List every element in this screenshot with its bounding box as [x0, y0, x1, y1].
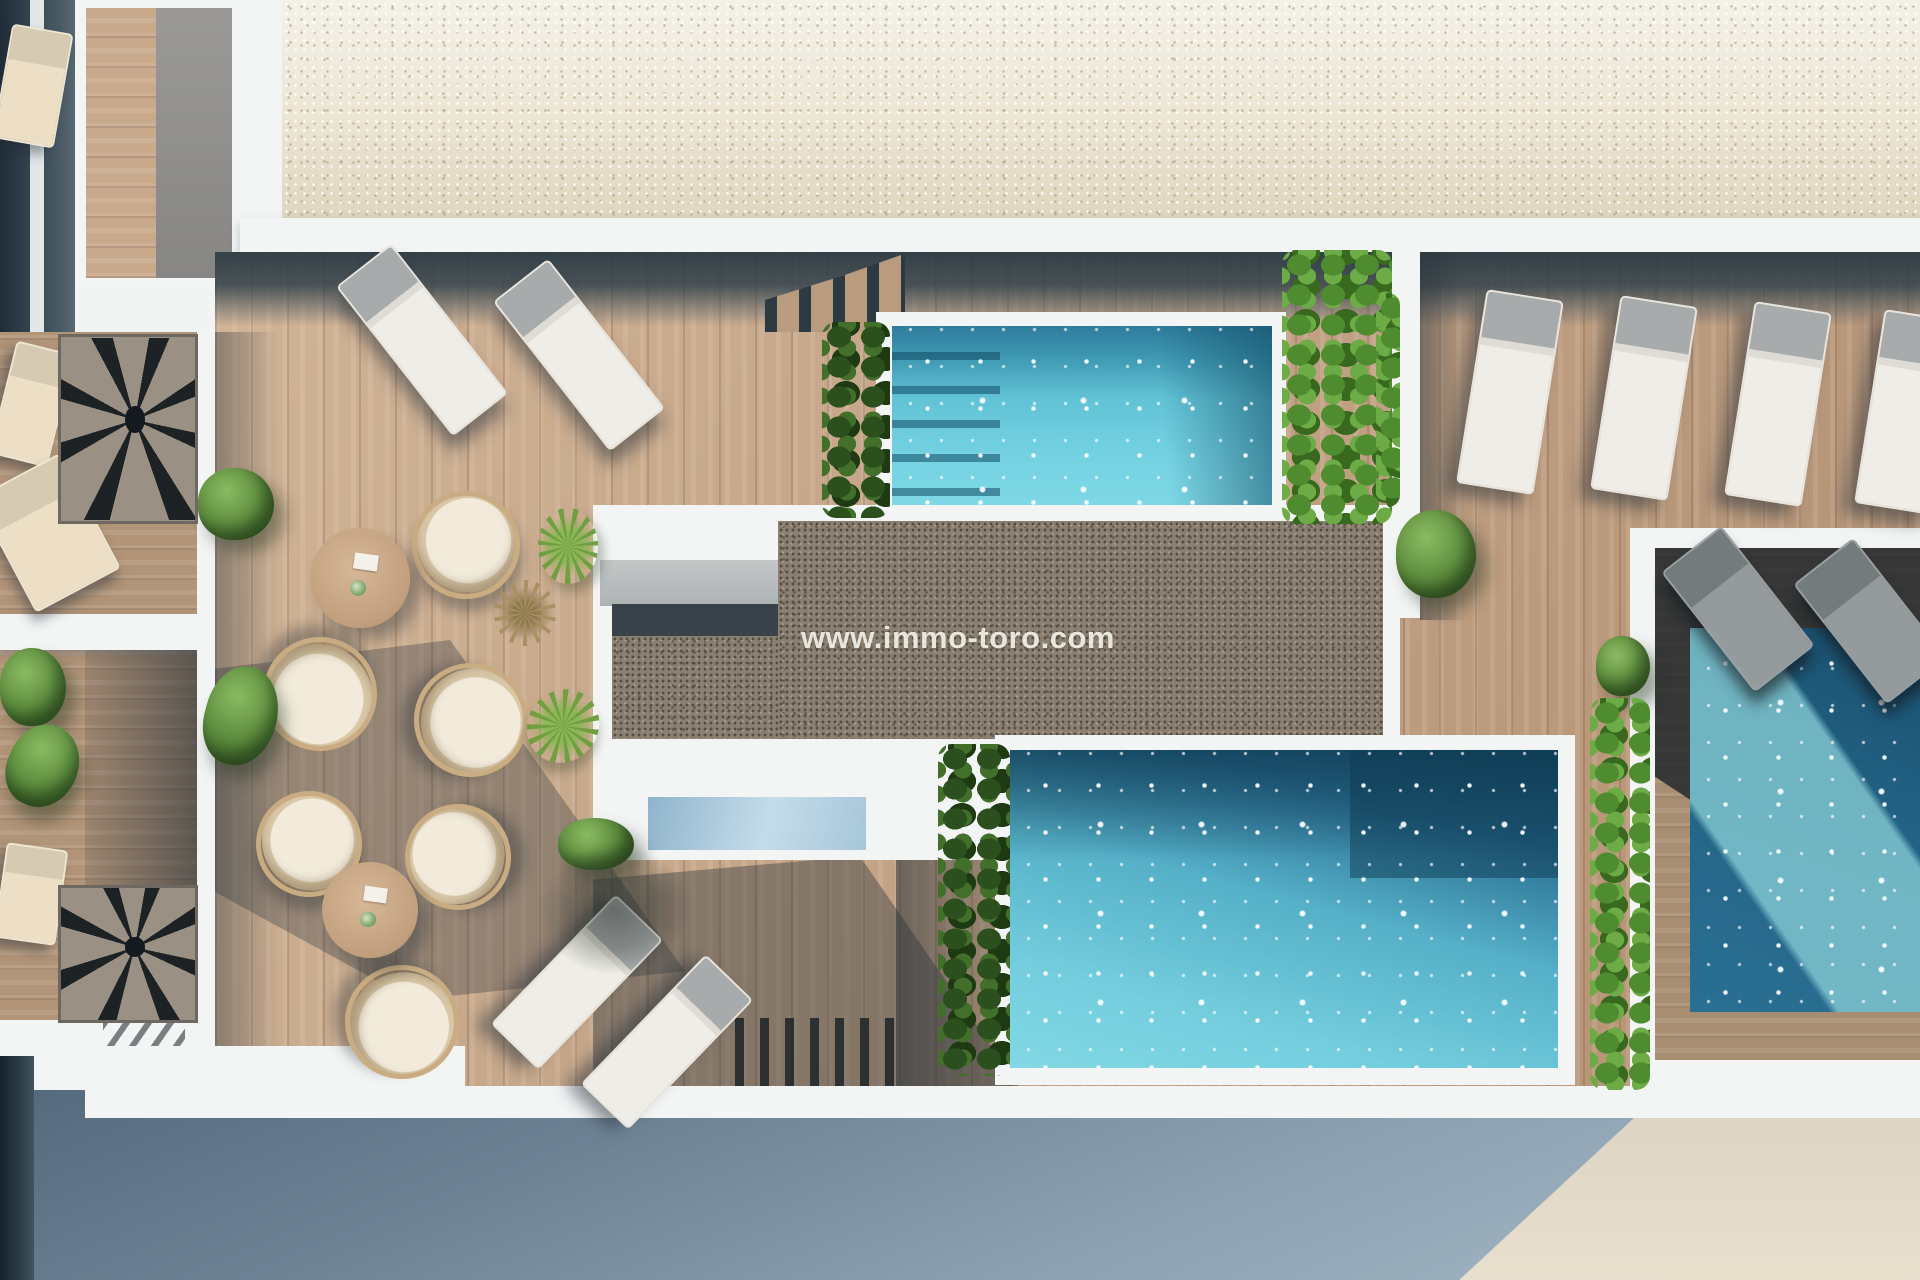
round-table — [322, 862, 418, 958]
spiral-staircase — [58, 885, 198, 1023]
rattan-chair — [392, 471, 540, 619]
bush-plant — [558, 818, 634, 870]
bush-plant — [0, 648, 66, 726]
sun-lounger — [336, 244, 508, 437]
sun-lounger — [1590, 295, 1698, 501]
sun-lounger — [1661, 526, 1814, 693]
rattan-chair — [329, 949, 475, 1095]
tree-shadow — [540, 845, 690, 975]
bush-plant — [0, 713, 92, 819]
sun-lounger — [1724, 301, 1832, 507]
watermark-text: www.immo-toro.com — [748, 620, 1168, 660]
yucca-plant — [538, 508, 598, 584]
vine-planter — [1376, 293, 1400, 507]
vine-planter — [938, 744, 1010, 1076]
dry-grass-plant — [494, 580, 556, 646]
sun-lounger — [0, 23, 74, 148]
sun-lounger — [0, 842, 68, 946]
vine-planter — [1590, 698, 1650, 1090]
rattan-chair — [234, 769, 383, 918]
sun-lounger — [0, 453, 121, 613]
sun-lounger — [1793, 538, 1920, 705]
rattan-chair — [383, 782, 532, 931]
rattan-chair — [247, 621, 393, 767]
aerial-render: www.immo-toro.com — [0, 0, 1920, 1280]
sun-lounger — [581, 954, 754, 1129]
spiral-staircase — [58, 334, 198, 524]
bush-plant — [1396, 510, 1476, 598]
sun-lounger — [493, 259, 665, 452]
bush-plant — [193, 658, 288, 773]
rattan-chair — [393, 642, 549, 798]
yucca-plant — [512, 674, 614, 777]
sun-lounger — [1456, 289, 1564, 495]
vine-planter — [822, 322, 890, 518]
sun-lounger — [1854, 309, 1920, 515]
round-table — [310, 528, 410, 628]
bush-plant — [1596, 636, 1650, 696]
bush-plant — [198, 468, 274, 540]
sun-lounger — [491, 894, 664, 1069]
vine-planter — [1282, 250, 1392, 524]
sun-lounger — [0, 340, 75, 467]
